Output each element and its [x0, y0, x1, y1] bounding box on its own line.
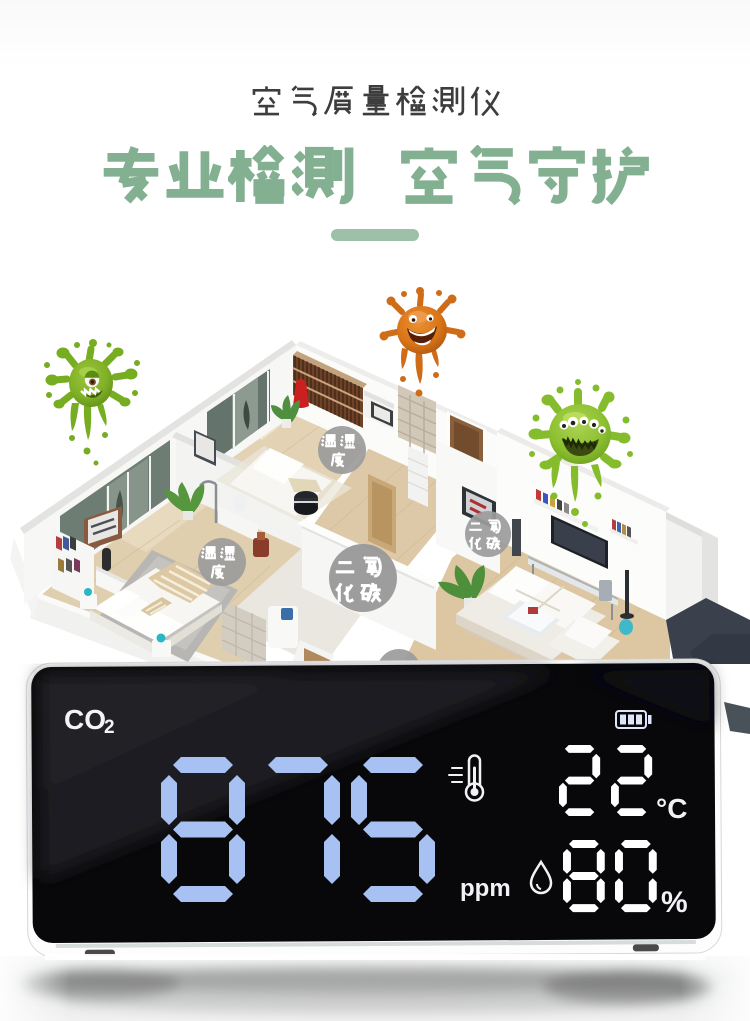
svg-text:ppm: ppm	[460, 875, 511, 902]
svg-text:CO: CO	[64, 704, 106, 735]
svg-text:°C: °C	[656, 793, 687, 824]
svg-text:%: %	[661, 886, 688, 919]
svg-text:2: 2	[104, 717, 115, 738]
